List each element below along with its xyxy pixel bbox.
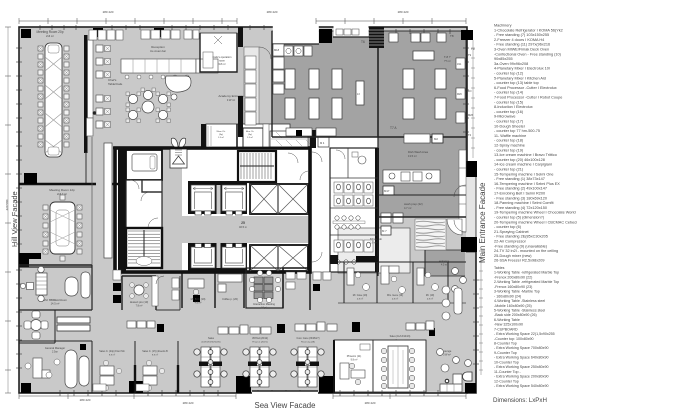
svg-text:- Free standing (3) 180x69x120: - Free standing (3) 180x69x120 — [494, 196, 547, 200]
svg-text:- Free standing (1) 38x73x147: - Free standing (1) 38x73x147 — [494, 177, 545, 181]
svg-text:5-Planetary Mixer I Kitchen Ai: 5-Planetary Mixer I Kitchen Aid — [494, 76, 546, 80]
svg-text:M 4: M 4 — [320, 141, 325, 145]
svg-text:Sales C. (17p) Events B: Sales C. (17p) Events B — [142, 350, 168, 353]
svg-text:9.8 m²: 9.8 m² — [351, 358, 358, 361]
svg-text:Men Ch.: Men Ch. — [246, 131, 255, 133]
svg-text:14-Ice cream machine I Carpigi: 14-Ice cream machine I Carpigiani — [494, 163, 552, 167]
svg-text:- Free standing (2) 49x100x147: - Free standing (2) 49x100x147 — [494, 187, 547, 191]
svg-text:- counter top (12): - counter top (12) — [494, 72, 524, 76]
svg-text:- Free standing (7) 103x150x25: - Free standing (7) 103x150x255 — [494, 33, 549, 37]
svg-text:M 7: M 7 — [382, 229, 387, 233]
svg-text:280 420: 280 420 — [398, 10, 409, 14]
svg-text:- counter top (17): - counter top (17) — [494, 120, 524, 124]
svg-text:Sales C. (24p) Floor Mn: Sales C. (24p) Floor Mn — [99, 350, 125, 353]
svg-text:1-Working Table -refrigerated: 1-Working Table -refrigerated Marble Top — [494, 271, 559, 275]
svg-text:87 lav Lob: 87 lav Lob — [370, 237, 383, 241]
svg-text:wash prep (22): wash prep (22) — [404, 202, 423, 206]
svg-text:9.8 m²: 9.8 m² — [109, 353, 115, 356]
svg-text:1-Chocolate Refrigerator I KO: 1-Chocolate Refrigerator I KOMA 56(Yk2 — [494, 28, 563, 32]
svg-text:Dimensions: LxPxH: Dimensions: LxPxH — [493, 397, 547, 404]
svg-text:Phoenix (11): Phoenix (11) — [347, 354, 362, 358]
svg-text:25-Dough mixer (new): 25-Dough mixer (new) — [494, 254, 532, 258]
svg-text:Finance (26/21): Finance (26/21) — [252, 341, 268, 343]
svg-text:20-Tempering machine Wheel I C: 20-Tempering machine Wheel I CBCMAC Cebe… — [494, 220, 577, 224]
svg-text:12-Counter Top: 12-Counter Top — [494, 379, 519, 383]
svg-text:4.8 m²: 4.8 m² — [427, 297, 433, 300]
svg-text:14.5 m²: 14.5 m² — [51, 302, 60, 306]
svg-text:- Extra Working Space 200x80x9: - Extra Working Space 200x80x90 — [494, 375, 548, 379]
svg-text:7.8 m²: 7.8 m² — [136, 304, 143, 307]
svg-text:280 420: 280 420 — [103, 10, 114, 14]
svg-text:M26: M26 — [468, 113, 474, 117]
svg-text:- Free standing 2E(85xC30x205: - Free standing 2E(85xC30x205 — [494, 235, 548, 239]
svg-text:280 420: 280 420 — [267, 10, 278, 14]
svg-text:Overseas: Overseas — [395, 338, 405, 341]
svg-text:- counter top (21): - counter top (21) — [494, 168, 524, 172]
svg-text:9.8 m²: 9.8 m² — [152, 353, 158, 356]
svg-text:Sea View Facade: Sea View Facade — [255, 401, 316, 410]
svg-text:280 420: 280 420 — [80, 398, 91, 402]
svg-text:-Mobile 160x80x90 (25): -Mobile 160x80x90 (25) — [494, 304, 532, 308]
svg-text:Tables: Tables — [494, 266, 505, 270]
svg-text:4-Working Table -Stainless ste: 4-Working Table -Stainless steel — [494, 299, 545, 303]
svg-text:8-Counter Top: 8-Counter Top — [494, 342, 517, 346]
svg-text:-Confectional Oven - Free stan: -Confectional Oven - Free standing (10) — [494, 52, 562, 56]
svg-text:19-Tempering machine Wheel I C: 19-Tempering machine Wheel I Chocolate W… — [494, 211, 576, 215]
svg-text:13-Ice cream machine I Bravo T: 13-Ice cream machine I Bravo Trittico — [494, 153, 557, 157]
svg-text:6-Working Table: 6-Working Table — [494, 318, 520, 322]
svg-text:11-Counter Top -: 11-Counter Top - — [494, 370, 521, 374]
svg-text:10-Dough Sheeter: 10-Dough Sheeter — [494, 124, 526, 128]
svg-text:2x6 m²: 2x6 m² — [46, 34, 54, 38]
svg-text:Interactive Meeting: Interactive Meeting — [253, 302, 275, 306]
svg-text:M17: M17 — [384, 189, 390, 193]
svg-text:- Extra Working Space 22(1,5x: - Extra Working Space 22(1,5x90x255 — [494, 332, 555, 336]
svg-text:T-8 ?: T-8 ? — [444, 55, 451, 59]
svg-text:Reception: Reception — [151, 45, 165, 49]
svg-text:- counter top (13) table top: - counter top (13) table top — [494, 81, 539, 85]
svg-text:(9p): (9p) — [248, 134, 252, 136]
svg-text:4.8 m²: 4.8 m² — [392, 297, 398, 300]
svg-text:- counter top (14): - counter top (14) — [494, 91, 524, 95]
svg-text:2-Working Table -refrigerated: 2-Working Table -refrigerated Marble Top — [494, 280, 559, 284]
svg-text:Dish Wash Area: Dish Wash Area — [408, 150, 428, 154]
svg-text:- counter top (15): - counter top (15) — [494, 100, 524, 104]
svg-text:-Counter top: 100x80x90: -Counter top: 100x80x90 — [494, 337, 534, 341]
svg-text:Meeting Room 12p: Meeting Room 12p — [49, 188, 75, 192]
svg-text:7-CUPBOARD: 7-CUPBOARD — [494, 327, 518, 331]
svg-text:Mr. B.O. (19): Mr. B.O. (19) — [191, 297, 206, 301]
svg-text:M2: M2 — [434, 137, 438, 141]
svg-text:T7 A: T7 A — [390, 126, 397, 130]
svg-text:Machinery: Machinery — [494, 24, 512, 28]
svg-text:Mr. (19): Mr. (19) — [426, 294, 434, 297]
svg-text:4.7 m²: 4.7 m² — [404, 206, 411, 210]
svg-text:22-Air Compressor: 22-Air Compressor — [494, 240, 527, 244]
svg-text:90x85x255: 90x85x255 — [494, 57, 513, 61]
svg-text:46.5 m: 46.5 m — [239, 225, 247, 229]
svg-text:M26: M26 — [457, 93, 462, 96]
svg-text:- Free standing (4) 72x120x150: - Free standing (4) 72x120x150 — [494, 206, 547, 210]
svg-text:11- Waffle machine: 11- Waffle machine — [494, 134, 526, 138]
svg-text:GM. BBMEA Room: GM. BBMEA Room — [43, 298, 68, 302]
svg-text:-Frenox 200x80x90 (22): -Frenox 200x80x90 (22) — [494, 275, 532, 279]
svg-text:(10/15/16/30/10/20): (10/15/16/30/10/20) — [201, 341, 220, 343]
svg-text:16-Tempering machine I Selmi P: 16-Tempering machine I Selmi Plus EX — [494, 182, 560, 186]
svg-text:15-Tempering machine I Selmi O: 15-Tempering machine I Selmi One — [494, 172, 554, 176]
svg-text:-New 325x100x90: -New 325x100x90 — [494, 323, 523, 327]
svg-text:T9: T9 — [468, 53, 472, 57]
svg-text:- counter top (18): - counter top (18) — [494, 139, 524, 143]
svg-text:8-Induction I Electrolux: 8-Induction I Electrolux — [494, 105, 533, 109]
svg-text:T2: T2 — [468, 133, 472, 137]
svg-text:- counter top (19): - counter top (19) — [494, 148, 524, 152]
svg-text:420 580: 420 580 — [5, 199, 9, 210]
svg-text:-Frenox 160x80x90 (23): -Frenox 160x80x90 (23) — [494, 285, 532, 289]
svg-text:Reser.ing (28): Reser.ing (28) — [301, 340, 315, 343]
svg-text:3.5 m²: 3.5 m² — [247, 136, 253, 139]
svg-text:13.5 m²: 13.5 m² — [408, 154, 417, 158]
svg-text:1N1: 1N1 — [457, 63, 462, 66]
svg-text:9-Counter Top: 9-Counter Top — [494, 351, 517, 355]
svg-text:17-Enrobing Belt I Selmi R200: 17-Enrobing Belt I Selmi R200 — [494, 192, 545, 196]
svg-text:Hill View Facade: Hill View Facade — [10, 191, 19, 247]
svg-text:3.5 m²: 3.5 m² — [218, 136, 224, 139]
svg-text:3-Oven MIWE/Fimak Deck Oven: 3-Oven MIWE/Fimak Deck Oven — [494, 48, 549, 52]
svg-text:(9p): (9p) — [219, 134, 223, 136]
svg-text:3 W m²: 3 W m² — [227, 98, 235, 102]
svg-text:26-SSA Freezer R2,5x98x209: 26-SSA Freezer R2,5x98x209 — [494, 259, 544, 263]
svg-text:- counter top (16): - counter top (16) — [494, 110, 524, 114]
svg-text:- Free standing (11) 297x(96x2: - Free standing (11) 297x(96x216 — [494, 43, 550, 47]
svg-text:2.5un: 2.5un — [52, 350, 59, 353]
svg-text:Wom Ch.: Wom Ch. — [216, 131, 225, 133]
svg-text:280 420: 280 420 — [183, 401, 194, 405]
svg-text:T6: T6 — [361, 40, 365, 44]
svg-text:Mr. Cave (19): Mr. Cave (19) — [353, 294, 368, 297]
svg-text:- counter top (5) (dimension?): - counter top (5) (dimension?) — [494, 216, 545, 220]
svg-text:3.8 m²: 3.8 m² — [218, 62, 225, 66]
svg-text:Main Entrance Facade: Main Entrance Facade — [478, 182, 487, 263]
svg-text:4.8 m²: 4.8 m² — [195, 301, 202, 304]
svg-text:2-Freezer 4 doors I KOMA H4: 2-Freezer 4 doors I KOMA H4 — [494, 38, 544, 42]
svg-text:room: room — [219, 58, 225, 62]
svg-text:18-Panning machine I Selmi Com: 18-Panning machine I Selmi Comfit — [494, 201, 554, 205]
svg-text:General Manager: General Manager — [45, 346, 65, 350]
svg-text:6-Food Processor -Cutter I Ele: 6-Food Processor -Cutter I Electrolux — [494, 86, 557, 90]
svg-text:21-Spraying Cabinet: 21-Spraying Cabinet — [494, 230, 530, 234]
svg-text:dessert pre (10): dessert pre (10) — [130, 300, 148, 304]
svg-text:- 160x80x90 (24): - 160x80x90 (24) — [494, 294, 521, 298]
svg-text:3a-Oven 99x96x208: 3a-Oven 99x96x208 — [494, 62, 528, 66]
svg-text:Meeting Room 20p: Meeting Room 20p — [37, 30, 64, 34]
svg-text:T8: T8 — [450, 34, 454, 38]
svg-text:4.5 m: 4.5 m — [441, 263, 447, 266]
svg-text:VIP/GA (26/12): VIP/GA (26/12) — [252, 337, 268, 340]
svg-text:Lounge: Lounge — [443, 349, 452, 353]
svg-text:Cust. Care (26/26/27): Cust. Care (26/26/27) — [297, 337, 320, 340]
svg-text:5-Working Table -Stainless ste: 5-Working Table -Stainless steel — [494, 309, 545, 313]
svg-text:1N: 1N — [468, 89, 471, 93]
svg-text:3.9 m²: 3.9 m² — [370, 241, 377, 244]
svg-text:- Extra Working Space 640x80x9: - Extra Working Space 640x80x90 — [494, 356, 548, 360]
svg-text:280 420: 280 420 — [365, 401, 376, 405]
svg-text:- counter top (6): - counter top (6) — [494, 225, 522, 229]
svg-text:4-Planetary Mixer I Electrolux: 4-Planetary Mixer I Electrolux 10l — [494, 67, 550, 71]
svg-text:- Extra Working Space 700x80x: - Extra Working Space 700x80x90 — [494, 346, 548, 350]
svg-text:- Extra Working Space 540x80x: - Extra Working Space 540x80x90 — [494, 384, 548, 388]
svg-text:9-Microwave: 9-Microwave — [494, 115, 516, 119]
svg-text:12-Spray machine: 12-Spray machine — [494, 144, 525, 148]
svg-text:25: 25 — [241, 221, 245, 225]
svg-text:7-Food Processor -Cutter I Rob: 7-Food Processor -Cutter I Robot Coupe — [494, 96, 562, 100]
svg-text:4.8 m²: 4.8 m² — [357, 297, 363, 300]
svg-text:-Free standing (9) (unavailabl: -Free standing (9) (unavailable) — [494, 244, 548, 248]
svg-text:Sales (11/13/14/16): Sales (11/13/14/16) — [390, 335, 411, 338]
svg-text:Table/Cafe: Table/Cafe — [108, 82, 123, 86]
svg-text:Mrs. Gene (19): Mrs. Gene (19) — [387, 294, 403, 297]
svg-text:?? m²: ?? m² — [444, 59, 451, 63]
svg-text:-Back side 200x80x90 (26): -Back side 200x80x90 (26) — [494, 313, 537, 317]
svg-text:Sales: Sales — [208, 337, 215, 340]
svg-text:3-Working Table -Marble Top: 3-Working Table -Marble Top — [494, 290, 540, 294]
svg-text:24-TV 32 in2l - mounted on the: 24-TV 32 in2l - mounted on the ceiling — [494, 249, 558, 253]
svg-text:Coffee p. (20): Coffee p. (20) — [222, 297, 238, 301]
svg-text:3 W m²: 3 W m² — [443, 353, 451, 356]
svg-text:Ice cream bar: Ice cream bar — [150, 49, 166, 53]
svg-text:M18: M18 — [274, 48, 280, 52]
svg-text:- counter top 77 hm-500-75: - counter top 77 hm-500-75 — [494, 129, 540, 133]
svg-text:10-Counter Top: 10-Counter Top — [494, 360, 519, 364]
svg-text:Cafe's operation: Cafe's operation — [213, 55, 232, 59]
svg-text:- counter top (20) 46x100x128: - counter top (20) 46x100x128 — [494, 158, 545, 162]
svg-text:10 p²: 10 p² — [261, 306, 267, 309]
svg-text:- Extra Working Space 250x80x: - Extra Working Space 250x80x90 — [494, 365, 548, 369]
